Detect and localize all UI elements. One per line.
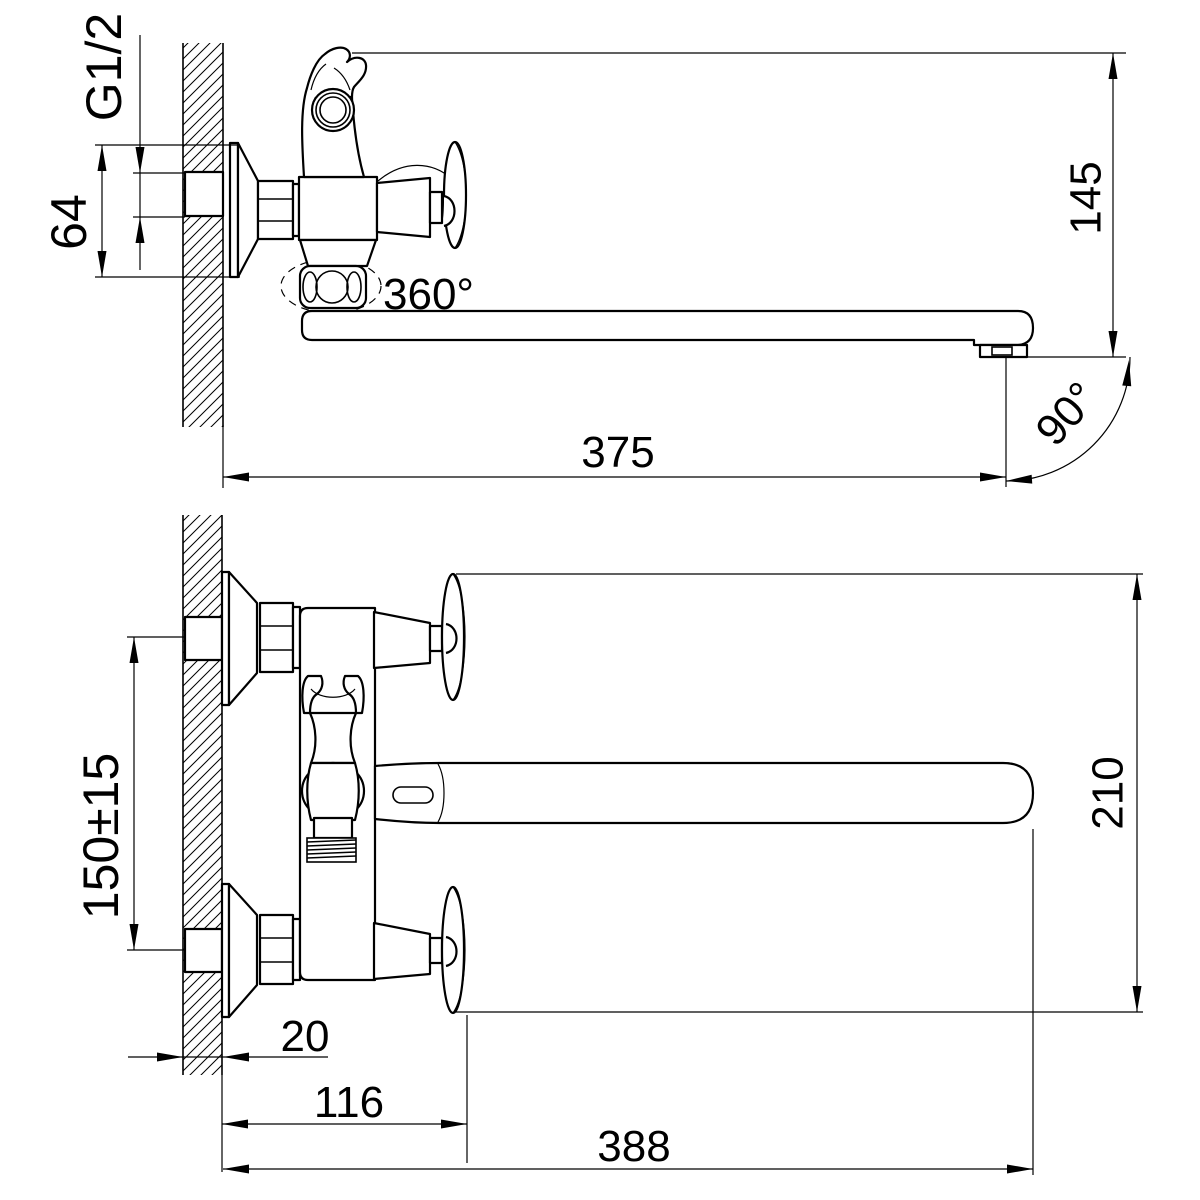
dim-label-escutcheon: 64 [41, 194, 97, 250]
escutcheon-rim [230, 143, 238, 277]
dim-label-spout-reach: 375 [581, 428, 654, 477]
valve-and-knob-side [377, 142, 466, 248]
technical-drawing-page: G1/2 64 145 360° 375 [0, 0, 1200, 1200]
wall-hatch [183, 43, 223, 427]
dim-label-overall-height: 210 [1084, 756, 1133, 829]
wall-hatch-front [183, 515, 222, 1075]
knob-stem-bottom [430, 938, 442, 963]
bracket-face [307, 763, 359, 820]
knob-disc-side [444, 142, 466, 248]
escutcheon-and-nut-side [230, 143, 299, 277]
dim-spacing: 150±15 [73, 637, 184, 950]
collar-transition [300, 240, 376, 266]
bracket-waist [310, 713, 356, 763]
dim-label-spout-height: 145 [1062, 161, 1111, 234]
spout-tube-front [375, 763, 1033, 823]
dim-wall-thickness: 20 [128, 1012, 329, 1062]
escutcheon-nut-bottom [222, 884, 300, 1017]
front-view: 150±15 20 116 388 210 [73, 515, 1143, 1175]
spout-front [375, 763, 1033, 823]
escutcheon-nut-top [222, 572, 300, 705]
knob-stem [430, 192, 442, 223]
dim-body-depth: 116 [222, 1015, 467, 1172]
faucet-body-side [299, 177, 377, 240]
hex-nut [258, 181, 293, 239]
cradle-ring-outer [312, 89, 354, 131]
knob-stem-top [430, 626, 442, 651]
dim-spout-reach: 375 [223, 357, 1006, 488]
dim-label-swivel: 360° [383, 270, 474, 319]
outlet-thread [307, 838, 356, 862]
supply-stub-top [185, 617, 222, 660]
wall-section-side [183, 43, 223, 427]
dim-swing-arc: 90° [1006, 357, 1134, 485]
dim-label-body-depth: 116 [314, 1078, 384, 1127]
swivel-collar-side [281, 240, 381, 313]
valve-bonnet-cone [377, 178, 430, 237]
side-view: G1/2 64 145 360° 375 [41, 13, 1133, 488]
escutcheon-cone [238, 143, 258, 277]
valve-cone-bottom [374, 923, 430, 979]
faucet-dimension-drawing: G1/2 64 145 360° 375 [0, 0, 1200, 1200]
wall-section-front [183, 515, 222, 1075]
supply-stub-bottom [185, 929, 222, 972]
valve-knob-bottom-front [374, 887, 465, 1013]
valve-knob-top-front [374, 574, 465, 700]
dim-label-spacing: 150±15 [73, 753, 129, 919]
dim-label-thread: G1/2 [76, 13, 132, 121]
supply-stub-side [185, 172, 223, 216]
dim-label-overall-length: 388 [597, 1122, 670, 1171]
outlet-neck [314, 818, 352, 838]
dim-label-wall-thickness: 20 [281, 1012, 330, 1061]
shower-cradle-side [302, 48, 366, 177]
valve-cone-top [374, 612, 430, 668]
